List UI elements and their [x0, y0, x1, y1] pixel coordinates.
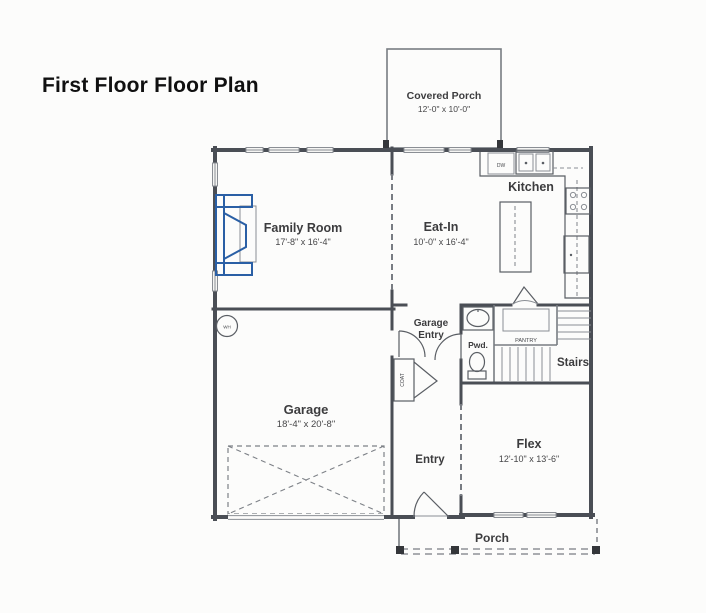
porch-post [451, 546, 459, 554]
window [494, 513, 523, 518]
entry: Entry [413, 454, 449, 517]
family-room-dims: 17'-8" x 16'-4" [275, 237, 330, 247]
pantry-label: PANTRY [515, 338, 537, 344]
eat-in-dims: 10'-0" x 16'-4" [413, 237, 468, 247]
porch-post [592, 546, 600, 554]
dishwasher-label: DW [497, 163, 506, 169]
coat-closet-label: COAT [400, 373, 406, 387]
window [269, 148, 299, 153]
window [449, 148, 471, 153]
coat-closet: COAT [394, 359, 437, 401]
stairs-label: Stairs [557, 357, 589, 369]
covered-porch: Covered Porch 12'-0" x 10'-0" [383, 49, 503, 150]
coat-closet-door [414, 362, 437, 398]
powder-sink [463, 307, 493, 330]
window [307, 148, 333, 153]
kitchen-island [500, 202, 531, 272]
flex-dims: 12'-10" x 13'-6" [499, 454, 559, 464]
kitchen: Kitchen DW [480, 151, 591, 298]
water-heater-label: WH [223, 325, 231, 330]
flex-label: Flex [516, 437, 541, 451]
porch: Porch [396, 519, 600, 554]
pantry-door [513, 287, 538, 304]
stairs: Stairs [502, 311, 591, 381]
kitchen-label: Kitchen [508, 180, 554, 194]
toilet-icon [468, 353, 486, 380]
floor-plan: Covered Porch 12'-0" x 10'-0" [0, 0, 706, 613]
covered-porch-label: Covered Porch [407, 90, 482, 102]
garage-label: Garage [284, 402, 329, 417]
window [213, 163, 218, 186]
family-room-label: Family Room [264, 221, 343, 235]
garage-door [228, 514, 384, 520]
window [527, 513, 556, 518]
garage-entry-hall: Garage Entry COAT [394, 318, 449, 401]
pantry: PANTRY [503, 287, 549, 344]
window [517, 148, 549, 153]
family-room: Family Room 17'-8" x 16'-4" [216, 195, 342, 275]
garage-entry-label-2: Entry [418, 330, 444, 341]
fireplace-icon [216, 195, 256, 275]
flex-room: Flex 12'-10" x 13'-6" [499, 437, 559, 464]
window [404, 148, 444, 153]
eat-in-room: Eat-In 10'-0" x 16'-4" [413, 220, 468, 247]
porch-label: Porch [475, 531, 509, 545]
range-icon [566, 188, 590, 214]
eat-in-label: Eat-In [424, 220, 459, 234]
kitchen-sink [516, 151, 553, 174]
garage-clearance [228, 446, 384, 514]
water-heater-icon: WH [217, 316, 238, 337]
window [246, 148, 263, 153]
garage-dims: 18'-4" x 20'-8" [277, 419, 335, 430]
entry-label: Entry [415, 454, 445, 466]
garage: Garage 18'-4" x 20'-8" WH [217, 316, 385, 521]
porch-post [396, 546, 404, 554]
covered-porch-dims: 12'-0" x 10'-0" [418, 104, 470, 114]
front-door [413, 492, 449, 517]
powder-label: Pwd. [468, 340, 488, 350]
garage-entry-label-1: Garage [414, 318, 449, 329]
